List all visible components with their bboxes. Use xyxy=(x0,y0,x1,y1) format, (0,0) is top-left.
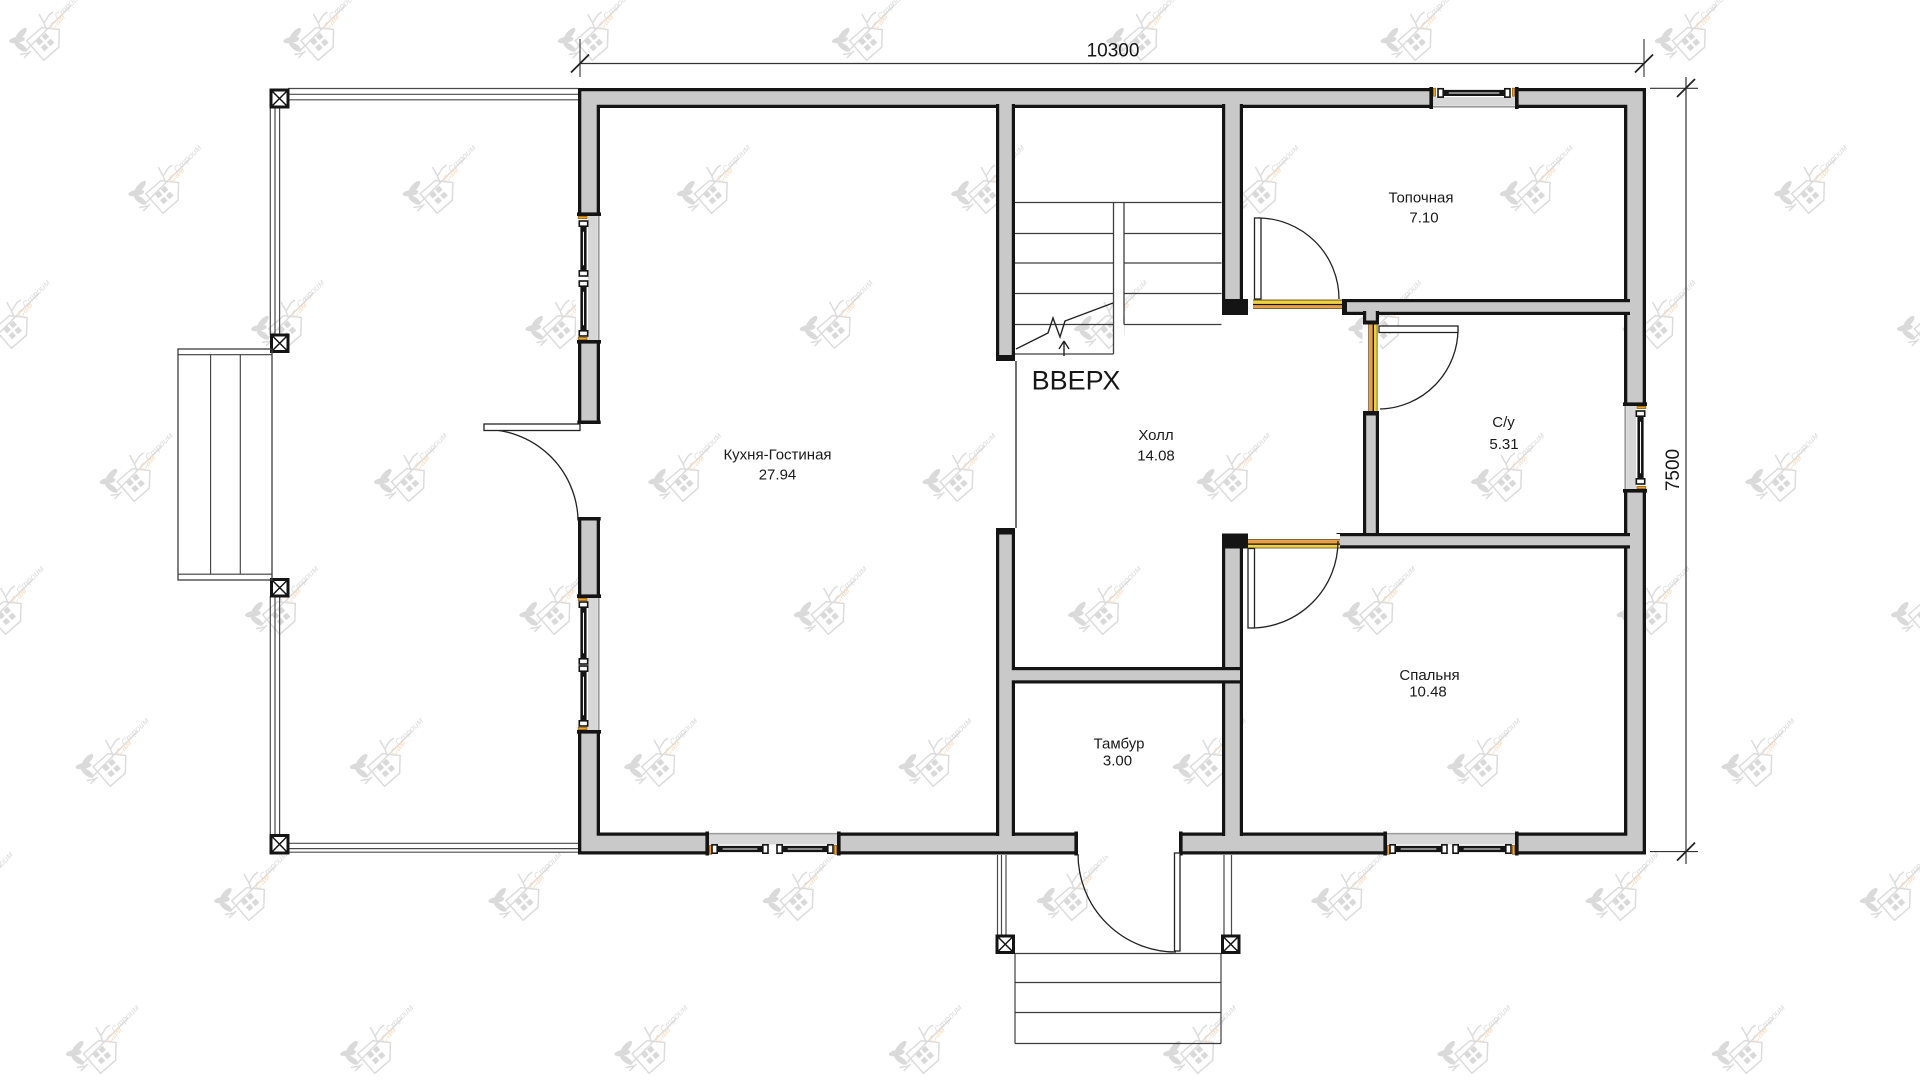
svg-text:Топочная: Топочная xyxy=(1388,190,1453,207)
svg-text:ВВЕРХ: ВВЕРХ xyxy=(1032,366,1121,396)
svg-text:5.31: 5.31 xyxy=(1489,436,1518,453)
svg-text:С/у: С/у xyxy=(1492,414,1515,431)
svg-text:Кухня-Гостиная: Кухня-Гостиная xyxy=(723,447,831,464)
svg-text:14.08: 14.08 xyxy=(1137,448,1175,465)
svg-text:27.94: 27.94 xyxy=(759,467,797,484)
svg-text:3.00: 3.00 xyxy=(1103,753,1132,770)
svg-text:10300: 10300 xyxy=(1087,41,1140,62)
svg-text:10.48: 10.48 xyxy=(1409,684,1447,701)
svg-text:Спальня: Спальня xyxy=(1399,667,1459,684)
svg-text:Тамбур: Тамбур xyxy=(1094,736,1145,753)
svg-text:7500: 7500 xyxy=(1663,449,1684,491)
svg-text:Холл: Холл xyxy=(1138,427,1173,444)
svg-text:7.10: 7.10 xyxy=(1409,210,1438,227)
